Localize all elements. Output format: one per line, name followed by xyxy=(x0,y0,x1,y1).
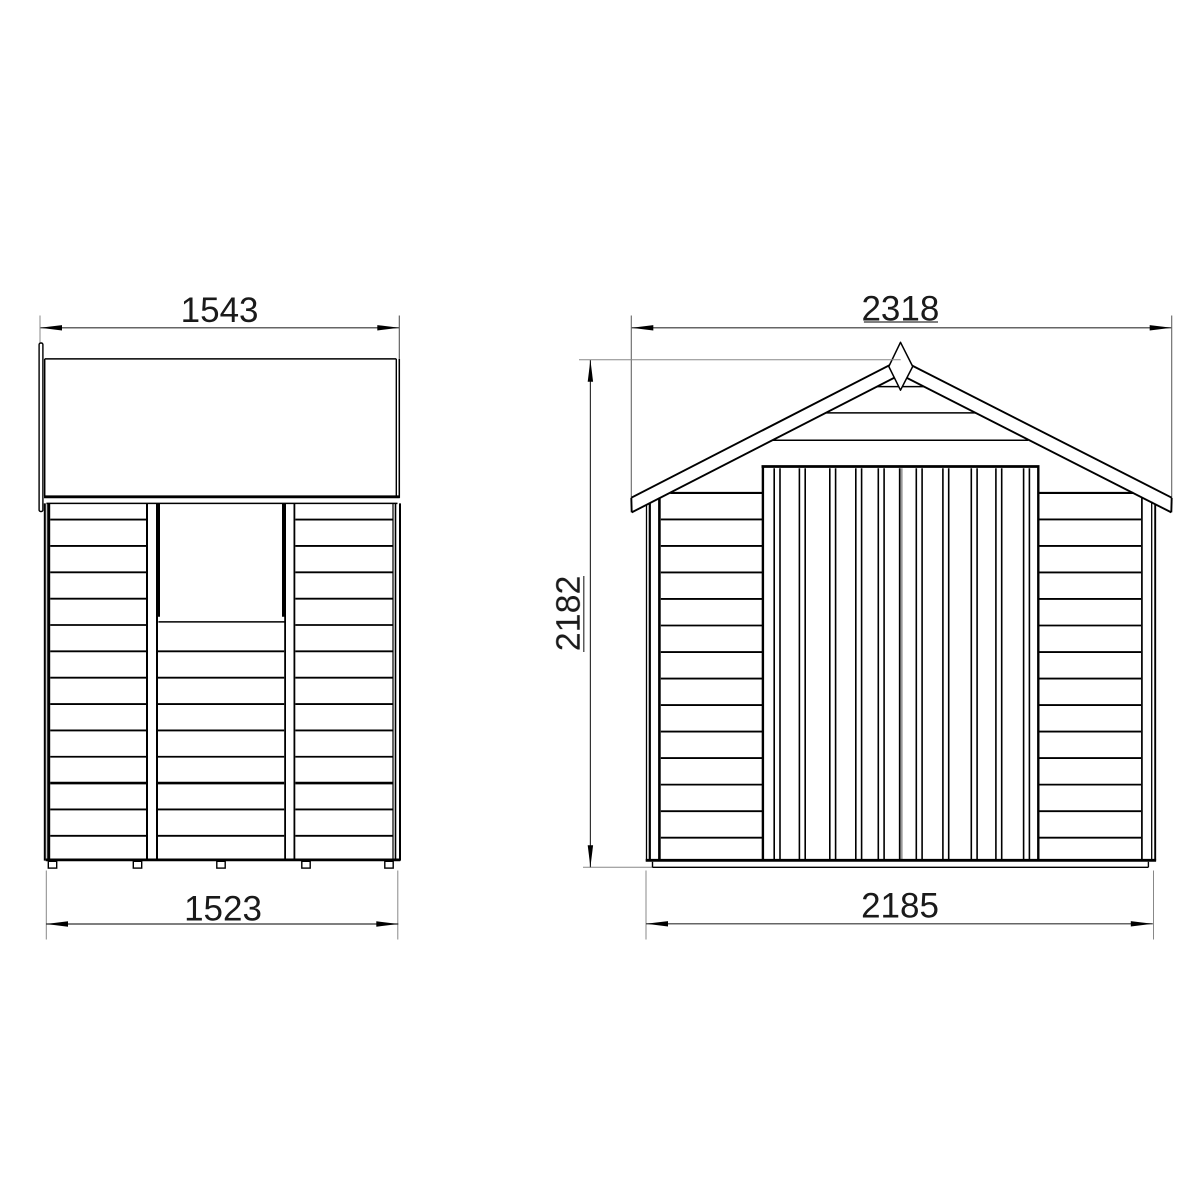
svg-text:2182: 2182 xyxy=(550,576,588,652)
svg-text:2185: 2185 xyxy=(861,887,939,926)
svg-text:1523: 1523 xyxy=(184,889,262,928)
svg-text:1543: 1543 xyxy=(181,291,259,330)
